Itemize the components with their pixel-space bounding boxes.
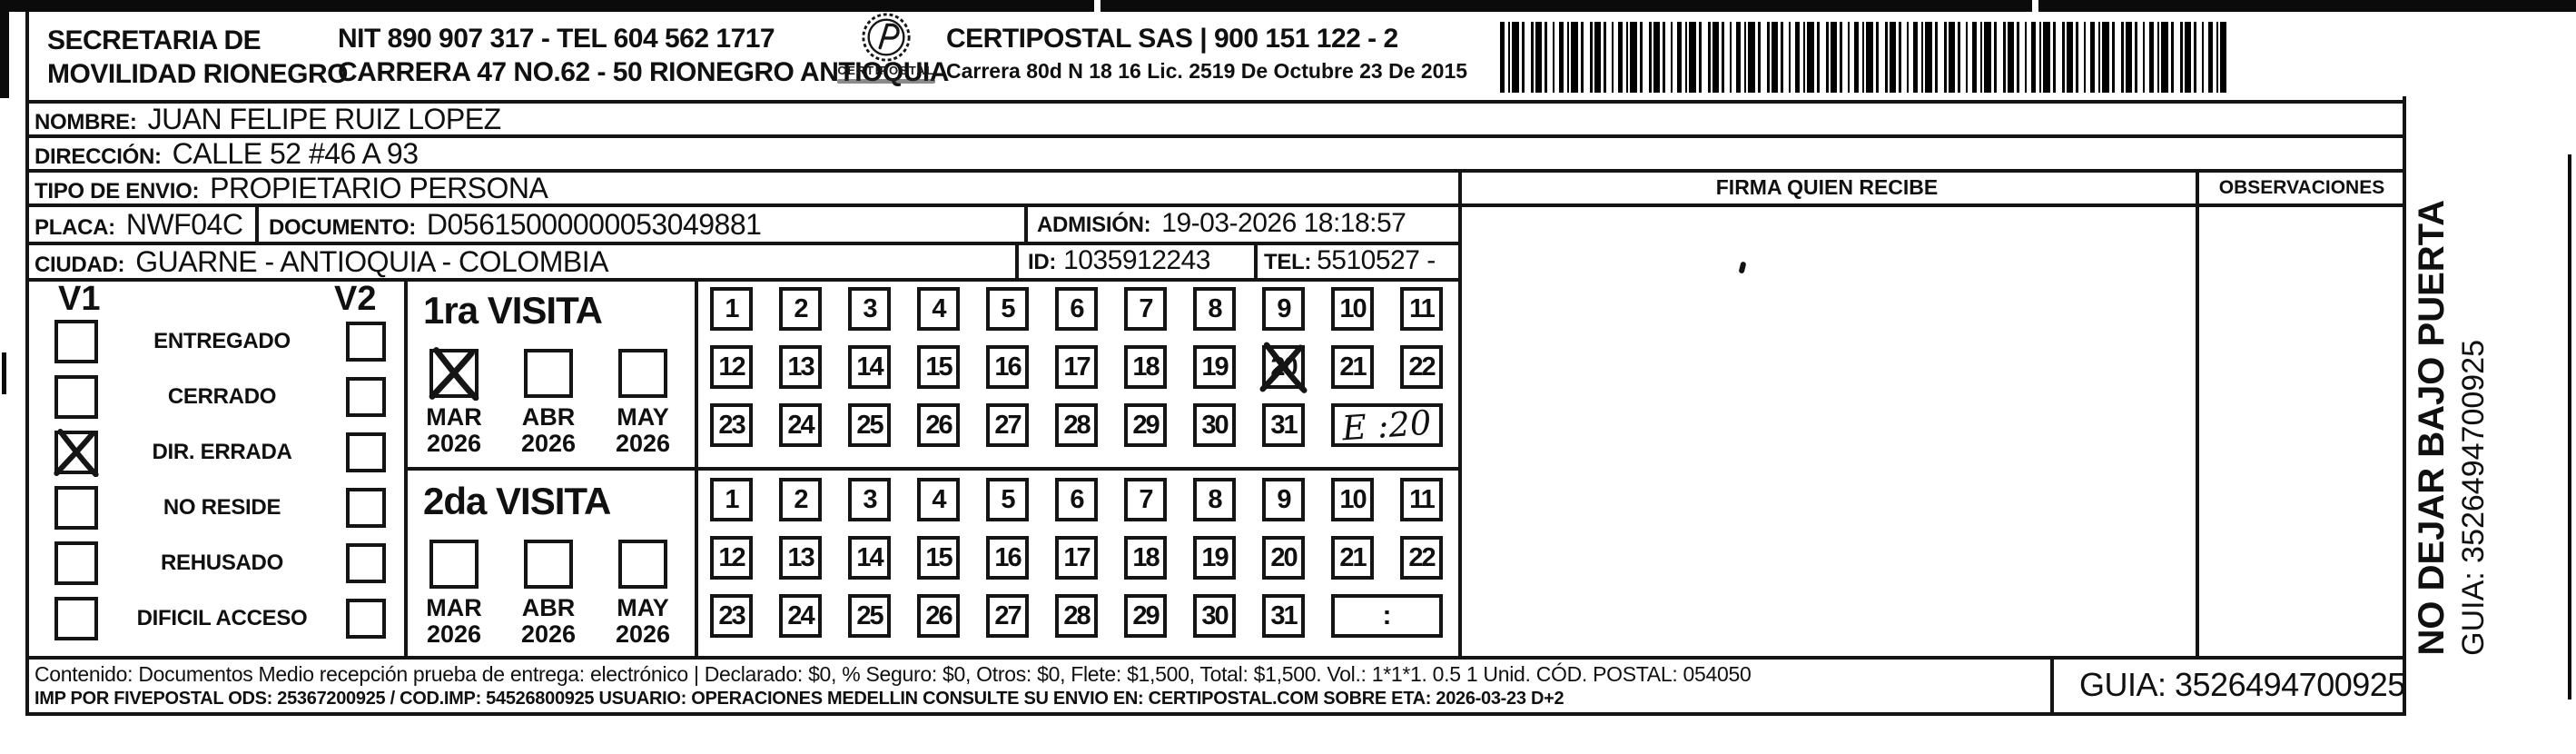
tel-field: TEL: 5510527 - [1264,245,1436,276]
crossed-day-mark [1258,341,1309,393]
day-number: 6 [1070,485,1082,515]
day-box-22: 22 [1400,345,1443,389]
checkbox-month-mar [429,349,479,398]
scan-left-edge [0,0,9,98]
day-number: 14 [856,543,882,573]
day-box-30: 30 [1193,594,1236,638]
tipo-envio-value: PROPIETARIO PERSONA [210,172,548,205]
visit-time-box: E :20 [1331,403,1443,447]
side-guia-number: GUIA: 3526494700925 [2456,340,2492,656]
side-rotated-text: NO DEJAR BAJO PUERTA GUIA: 3526494700925 [2412,87,2492,656]
day-box-15: 15 [917,536,960,580]
direccion-value: CALLE 52 #46 A 93 [173,137,419,171]
month-cell-abr: ABR2026 [512,349,585,458]
admision-value: 19-03-2026 18:18:57 [1161,208,1406,239]
v2-header: V2 [334,280,376,319]
visit-time-box: : [1331,594,1443,638]
guia-number: GUIA: 3526494700925 [2079,666,2405,704]
checkbox-v2-dificil-acceso [346,599,386,639]
grid-line [1015,242,1019,282]
day-box-27: 27 [986,403,1029,447]
tipo-envio-row: TIPO DE ENVIO: PROPIETARIO PERSONA [35,172,548,205]
footer-content-line: Contenido: Documentos Medio recepción pr… [35,662,1751,687]
month-label: ABR [512,595,585,620]
day-box-18: 18 [1124,536,1167,580]
grid-line [404,278,408,660]
certipostal-logo: CERTIPOSTAL [824,11,948,84]
day-box-10: 10 [1331,478,1374,521]
day-box-28: 28 [1055,403,1098,447]
handwritten-x-mark [1258,341,1309,393]
documento-field: DOCUMENTO: D05615000000053049881 [269,208,761,242]
nombre-label: NOMBRE: [35,110,137,135]
checkbox-month-may [618,349,667,398]
day-number: 10 [1339,485,1365,515]
day-number: 6 [1070,294,1082,324]
status-label-dir-errada: DIR. ERRADA [98,440,346,465]
day-box-28: 28 [1055,594,1098,638]
tel-label: TEL: [1264,250,1311,275]
first-visit-calendar: 1234567891011121314151617181920212223242… [710,287,1443,447]
scan-right-edge [2568,154,2571,699]
month-year: 2026 [607,620,679,649]
day-box-6: 6 [1055,287,1098,331]
scan-left-mark [2,352,6,394]
documento-value: D05615000000053049881 [427,208,762,242]
grid-line [1458,169,1462,660]
day-number: 30 [1201,411,1227,441]
day-box-19: 19 [1193,345,1236,389]
scan-top-edge [0,0,2576,12]
day-number: 15 [925,543,951,573]
sender-name: SECRETARIA DE MOVILIDAD RIONEGRO [47,24,348,91]
day-box-18: 18 [1124,345,1167,389]
day-box-26: 26 [917,594,960,638]
status-row-dir-errada: DIR. ERRADA [25,431,404,474]
side-warning-text: NO DEJAR BAJO PUERTA [2412,200,2453,656]
day-number: 5 [1001,294,1013,324]
day-number: 18 [1132,543,1158,573]
day-box-16: 16 [986,536,1029,580]
checkbox-month-may [618,540,667,589]
day-number: 31 [1270,411,1296,441]
scan-notch [1094,0,1100,12]
day-box-3: 3 [848,287,891,331]
day-number: 14 [856,352,882,382]
calendar-row: 1213141516171819202122 [710,536,1443,580]
day-box-4: 4 [917,478,960,521]
day-number: 10 [1339,294,1365,324]
direccion-label: DIRECCIÓN: [35,144,162,170]
shipping-label-document: SECRETARIA DE MOVILIDAD RIONEGRO NIT 890… [0,0,2576,754]
first-visit-title: 1ra VISITA [423,289,602,332]
delivery-status-checklist: ENTREGADOCERRADODIR. ERRADANO RESIDEREHU… [25,320,404,640]
day-box-12: 12 [710,536,753,580]
day-box-23: 23 [710,403,753,447]
month-cell-abr: ABR2026 [512,540,585,649]
day-box-24: 24 [779,403,822,447]
day-box-25: 25 [848,594,891,638]
calendar-row: 1213141516171819202122 [710,345,1443,389]
handwritten-x-mark [52,428,101,477]
grid-line [2050,656,2054,716]
month-label: ABR [512,404,585,430]
grid-line [1254,242,1258,282]
status-row-entregado: ENTREGADO [25,320,404,363]
status-row-no-reside: NO RESIDE [25,486,404,530]
status-label-entregado: ENTREGADO [98,329,346,354]
day-box-3: 3 [848,478,891,521]
day-number: 29 [1132,411,1158,441]
month-cell-may: MAY2026 [607,540,679,649]
nombre-row: NOMBRE: JUAN FELIPE RUIZ LOPEZ [35,103,501,136]
day-number: 4 [932,485,944,515]
checkbox-v1-entregado [54,320,98,363]
day-box-1: 1 [710,478,753,521]
tel-value: 5510527 - [1317,245,1436,276]
day-box-21: 21 [1331,536,1374,580]
sender-line2: MOVILIDAD RIONEGRO [47,57,348,91]
day-number: 12 [718,543,744,573]
day-box-2: 2 [779,287,822,331]
day-number: 30 [1201,601,1227,631]
day-number: 15 [925,352,951,382]
checkbox-month-abr [524,540,573,589]
day-number: 9 [1277,294,1289,324]
day-box-31: 31 [1262,403,1305,447]
grid-line [695,278,698,660]
direccion-row: DIRECCIÓN: CALLE 52 #46 A 93 [35,137,419,171]
day-number: 28 [1063,601,1089,631]
sender-line1: SECRETARIA DE [47,24,348,57]
day-number: 11 [1409,294,1434,324]
day-number: 9 [1277,485,1289,515]
certipostal-logo-icon [860,11,913,64]
day-number: 8 [1208,294,1220,324]
second-visit-calendar: 1234567891011121314151617181920212223242… [710,478,1443,638]
day-number: 26 [925,601,951,631]
checkbox-month-abr [524,349,573,398]
grid-line [2196,169,2199,660]
day-number: 22 [1408,543,1434,573]
day-number: 16 [994,352,1020,382]
tipo-envio-label: TIPO DE ENVIO: [35,179,199,204]
ciudad-field: CIUDAD: GUARNE - ANTIOQUIA - COLOMBIA [35,245,608,279]
footer-print-line: IMP POR FIVEPOSTAL ODS: 25367200925 / CO… [35,689,1564,709]
month-year: 2026 [512,430,585,458]
day-number: 24 [787,411,813,441]
status-label-cerrado: CERRADO [98,384,346,410]
day-box-9: 9 [1262,287,1305,331]
calendar-row: 1234567891011 [710,478,1443,521]
month-label: MAR [418,404,490,430]
month-year: 2026 [418,620,490,649]
placa-field: PLACA: NWF04C [35,208,242,242]
day-number: 7 [1139,485,1151,515]
calendar-row: 232425262728293031E :20 [710,403,1443,447]
day-number: 21 [1339,543,1365,573]
day-box-6: 6 [1055,478,1098,521]
day-box-16: 16 [986,345,1029,389]
day-number: 17 [1063,352,1089,382]
day-number: 27 [994,411,1020,441]
logo-tagline-blur [837,79,935,84]
checkbox-month-mar [429,540,479,589]
day-number: 4 [932,294,944,324]
day-box-17: 17 [1055,345,1098,389]
month-year: 2026 [418,430,490,458]
day-box-17: 17 [1055,536,1098,580]
day-number: 11 [1409,485,1434,515]
month-cell-may: MAY2026 [607,349,679,458]
logo-text: CERTIPOSTAL [824,64,948,77]
day-box-12: 12 [710,345,753,389]
calendar-row: 1234567891011 [710,287,1443,331]
day-box-11: 11 [1400,478,1443,521]
status-label-rehusado: REHUSADO [98,551,346,576]
v1-header: V1 [58,280,100,319]
day-box-29: 29 [1124,594,1167,638]
checkbox-v2-rehusado [346,543,386,583]
day-box-15: 15 [917,345,960,389]
handwritten-time-note: E :20 [1341,402,1433,448]
admision-label: ADMISIÓN: [1037,213,1150,238]
day-number: 21 [1339,352,1365,382]
grid-line [255,203,259,245]
status-label-no-reside: NO RESIDE [98,495,346,521]
day-number: 28 [1063,411,1089,441]
day-box-1: 1 [710,287,753,331]
day-number: 20 [1270,543,1296,573]
day-box-24: 24 [779,594,822,638]
day-box-5: 5 [986,287,1029,331]
day-number: 25 [856,411,882,441]
day-number: 31 [1270,601,1296,631]
firma-column-header: FIRMA QUIEN RECIBE [1462,175,2192,200]
barcode [1500,22,2226,93]
day-number: 7 [1139,294,1151,324]
day-box-5: 5 [986,478,1029,521]
checkbox-v2-no-reside [346,488,386,528]
status-row-dificil-acceso: DIFICIL ACCESO [25,597,404,640]
day-box-7: 7 [1124,478,1167,521]
day-box-2: 2 [779,478,822,521]
day-number: 17 [1063,543,1089,573]
day-number: 19 [1201,352,1227,382]
id-value: 1035912243 [1063,245,1210,276]
carrier-address-license: Carrera 80d N 18 16 Lic. 2519 De Octubre… [946,55,1467,86]
day-box-26: 26 [917,403,960,447]
status-row-rehusado: REHUSADO [25,541,404,585]
day-box-14: 14 [848,536,891,580]
day-box-21: 21 [1331,345,1374,389]
grid-line [1024,203,1028,245]
day-number: 26 [925,411,951,441]
day-number: 5 [1001,485,1013,515]
day-number: 23 [718,411,744,441]
status-row-cerrado: CERRADO [25,375,404,419]
grid-line [25,656,2406,660]
carrier-info: CERTIPOSTAL SAS | 900 151 122 - 2 Carrer… [946,22,1467,86]
day-number: 29 [1132,601,1158,631]
month-label: MAY [607,595,679,620]
day-box-7: 7 [1124,287,1167,331]
day-number: 13 [787,352,813,382]
day-number: 1 [725,485,737,515]
checkbox-v1-dificil-acceso [54,597,98,640]
calendar-row: 232425262728293031: [710,594,1443,638]
day-box-31: 31 [1262,594,1305,638]
month-label: MAY [607,404,679,430]
id-field: ID: 1035912243 [1028,245,1210,276]
day-number: 3 [863,485,875,515]
ciudad-value: GUARNE - ANTIOQUIA - COLOMBIA [135,245,608,279]
second-visit-title: 2da VISITA [423,480,610,523]
checkbox-v2-dir-errada [346,432,386,472]
day-box-14: 14 [848,345,891,389]
day-number: 1 [725,294,737,324]
day-box-22: 22 [1400,536,1443,580]
scan-notch [2032,0,2038,12]
day-number: 2 [794,485,806,515]
day-box-20: 20 [1262,536,1305,580]
grid-line [404,467,1458,471]
placa-value: NWF04C [126,208,243,242]
first-visit-months: MAR2026ABR2026MAY2026 [418,349,679,458]
checkbox-v2-entregado [346,322,386,362]
day-number: 23 [718,601,744,631]
day-box-9: 9 [1262,478,1305,521]
admision-field: ADMISIÓN: 19-03-2026 18:18:57 [1037,208,1406,239]
day-box-29: 29 [1124,403,1167,447]
day-box-19: 19 [1193,536,1236,580]
day-box-30: 30 [1193,403,1236,447]
day-box-27: 27 [986,594,1029,638]
month-label: MAR [418,595,490,620]
day-number: 13 [787,543,813,573]
day-box-13: 13 [779,536,822,580]
day-box-11: 11 [1400,287,1443,331]
day-number: 24 [787,601,813,631]
day-box-25: 25 [848,403,891,447]
handwritten-x-mark [427,346,481,401]
month-cell-mar: MAR2026 [418,540,490,649]
documento-label: DOCUMENTO: [269,215,416,241]
day-number: 12 [718,352,744,382]
day-box-10: 10 [1331,287,1374,331]
day-box-13: 13 [779,345,822,389]
day-number: 18 [1132,352,1158,382]
nombre-value: JUAN FELIPE RUIZ LOPEZ [148,103,501,136]
status-label-dificil-acceso: DIFICIL ACCESO [98,606,346,631]
month-cell-mar: MAR2026 [418,349,490,458]
day-number: 25 [856,601,882,631]
day-number: 16 [994,543,1020,573]
ink-speck [1739,261,1747,273]
day-number: 3 [863,294,875,324]
checkbox-v2-cerrado [346,377,386,417]
day-number: 8 [1208,485,1220,515]
carrier-name-nit: CERTIPOSTAL SAS | 900 151 122 - 2 [946,22,1467,55]
second-visit-months: MAR2026ABR2026MAY2026 [418,540,679,649]
day-box-4: 4 [917,287,960,331]
checkbox-v1-rehusado [54,541,98,585]
day-number: 22 [1408,352,1434,382]
checkbox-v1-cerrado [54,375,98,419]
form-border-bottom [25,712,2406,716]
id-label: ID: [1028,250,1056,275]
checkbox-v1-no-reside [54,486,98,530]
day-box-8: 8 [1193,478,1236,521]
day-number: 19 [1201,543,1227,573]
day-number: 27 [994,601,1020,631]
placa-label: PLACA: [35,215,115,241]
month-year: 2026 [607,430,679,458]
time-placeholder: : [1383,600,1392,631]
day-box-8: 8 [1193,287,1236,331]
checkbox-v1-dir-errada [54,431,98,474]
ciudad-label: CIUDAD: [35,253,124,278]
observaciones-column-header: OBSERVACIONES [2199,177,2404,199]
day-number: 2 [794,294,806,324]
day-box-23: 23 [710,594,753,638]
day-box-20: 20 [1262,345,1305,389]
month-year: 2026 [512,620,585,649]
